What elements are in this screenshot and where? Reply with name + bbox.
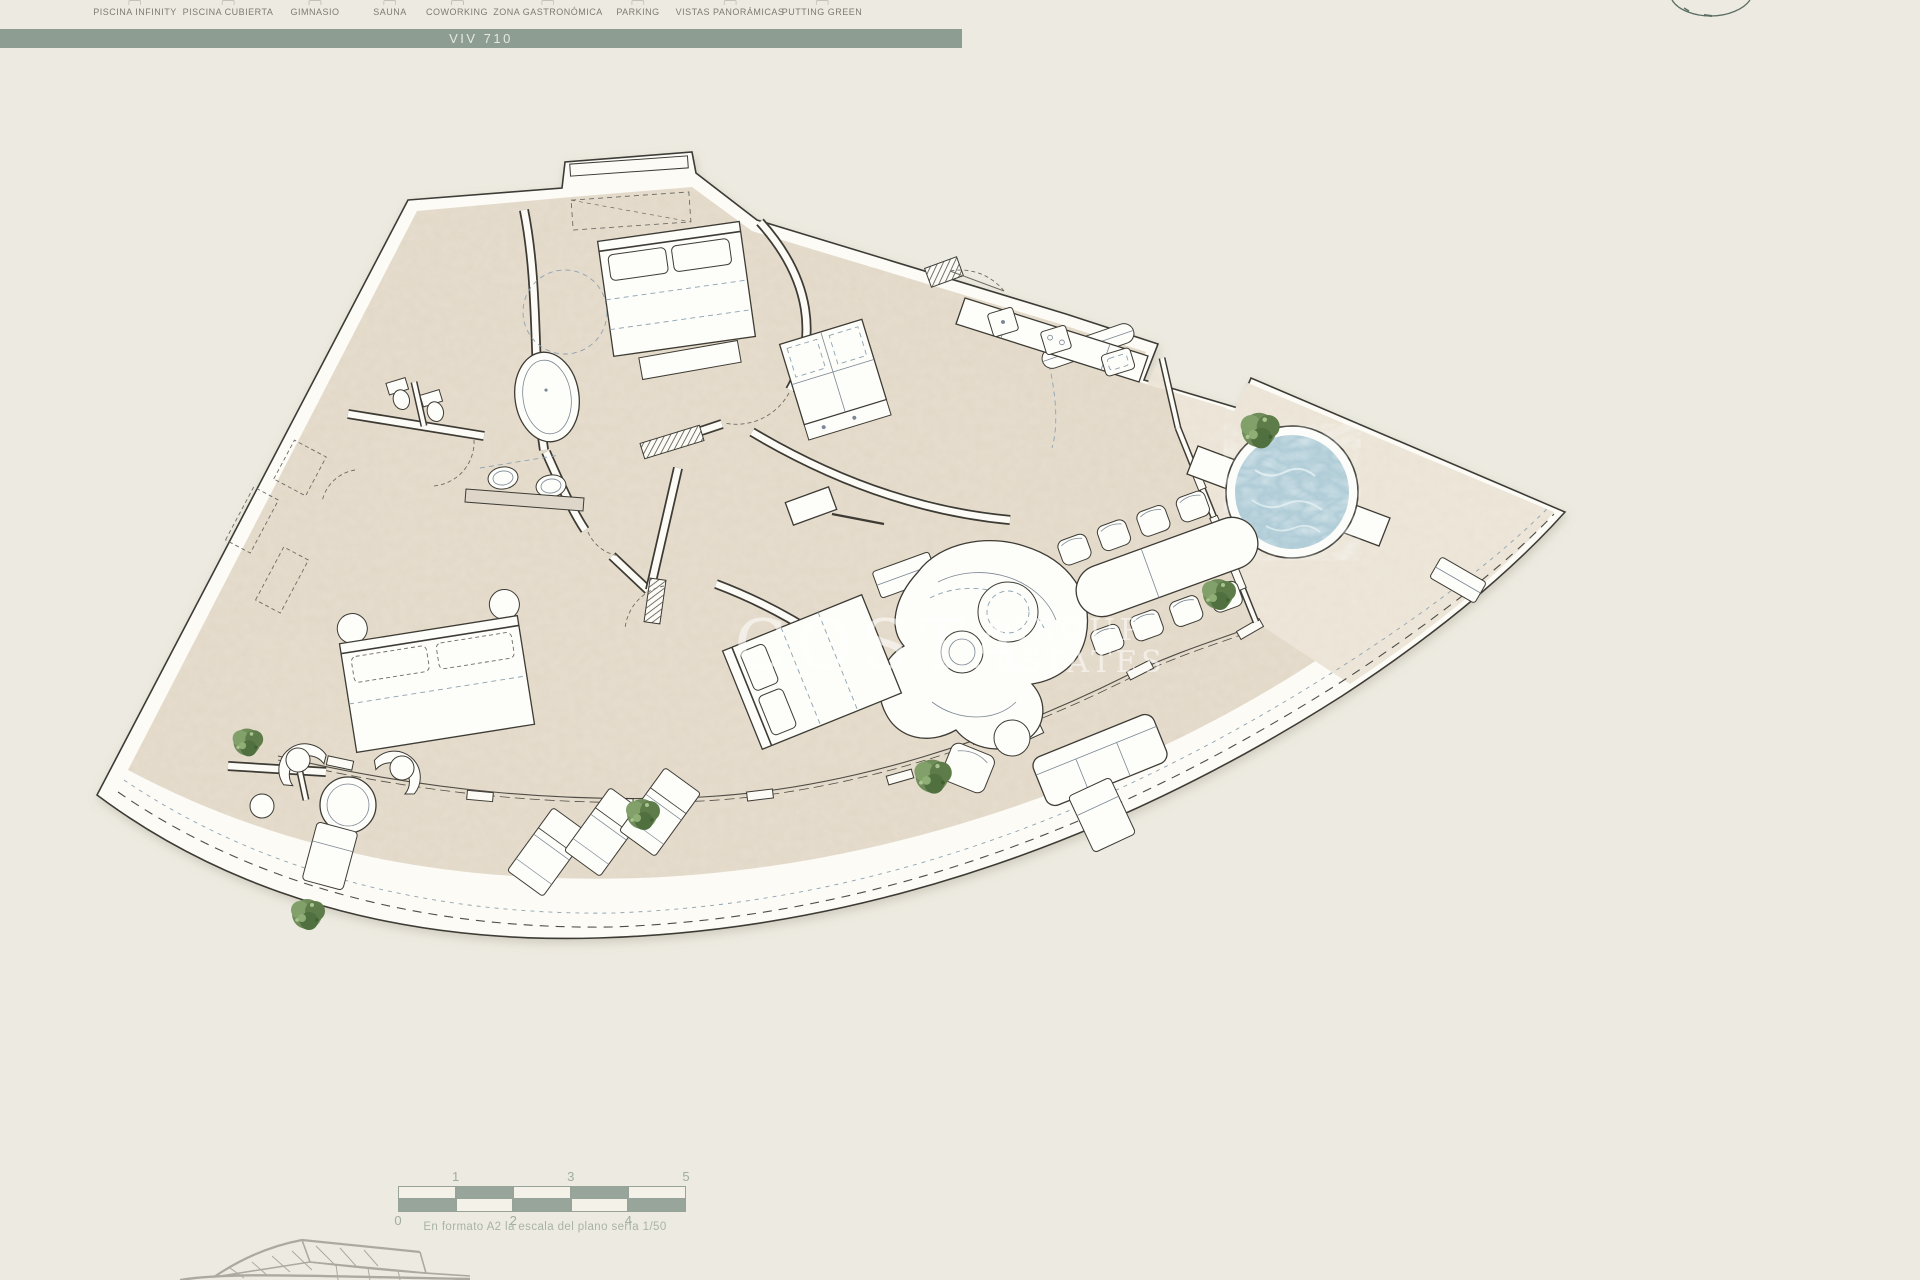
watermark-line1: COSTA: [734, 606, 1029, 685]
scale-label: 1: [452, 1169, 459, 1184]
watermark-line3: ESTATES: [994, 645, 1165, 680]
watermark: COSTA GROUP ESTATES: [734, 606, 1165, 685]
floor-plan-page: PISCINA INFINITY PISCINA CUBIERTA GIMNAS…: [0, 0, 1920, 1280]
scale-label: 5: [682, 1169, 689, 1184]
scale-bar: 1 3 5 0 2 4: [398, 1186, 686, 1212]
floor-plan-drawing: COSTA GROUP ESTATES: [0, 0, 1920, 1280]
scale-label: 3: [567, 1169, 574, 1184]
logo-stamp-arc: [1672, 0, 1750, 16]
watermark-line2: GROUP: [1003, 613, 1145, 648]
building-sketch: [180, 1240, 470, 1280]
master-bed: [598, 222, 756, 357]
scale-caption: En formato A2 la escala del plano sería …: [380, 1221, 710, 1233]
